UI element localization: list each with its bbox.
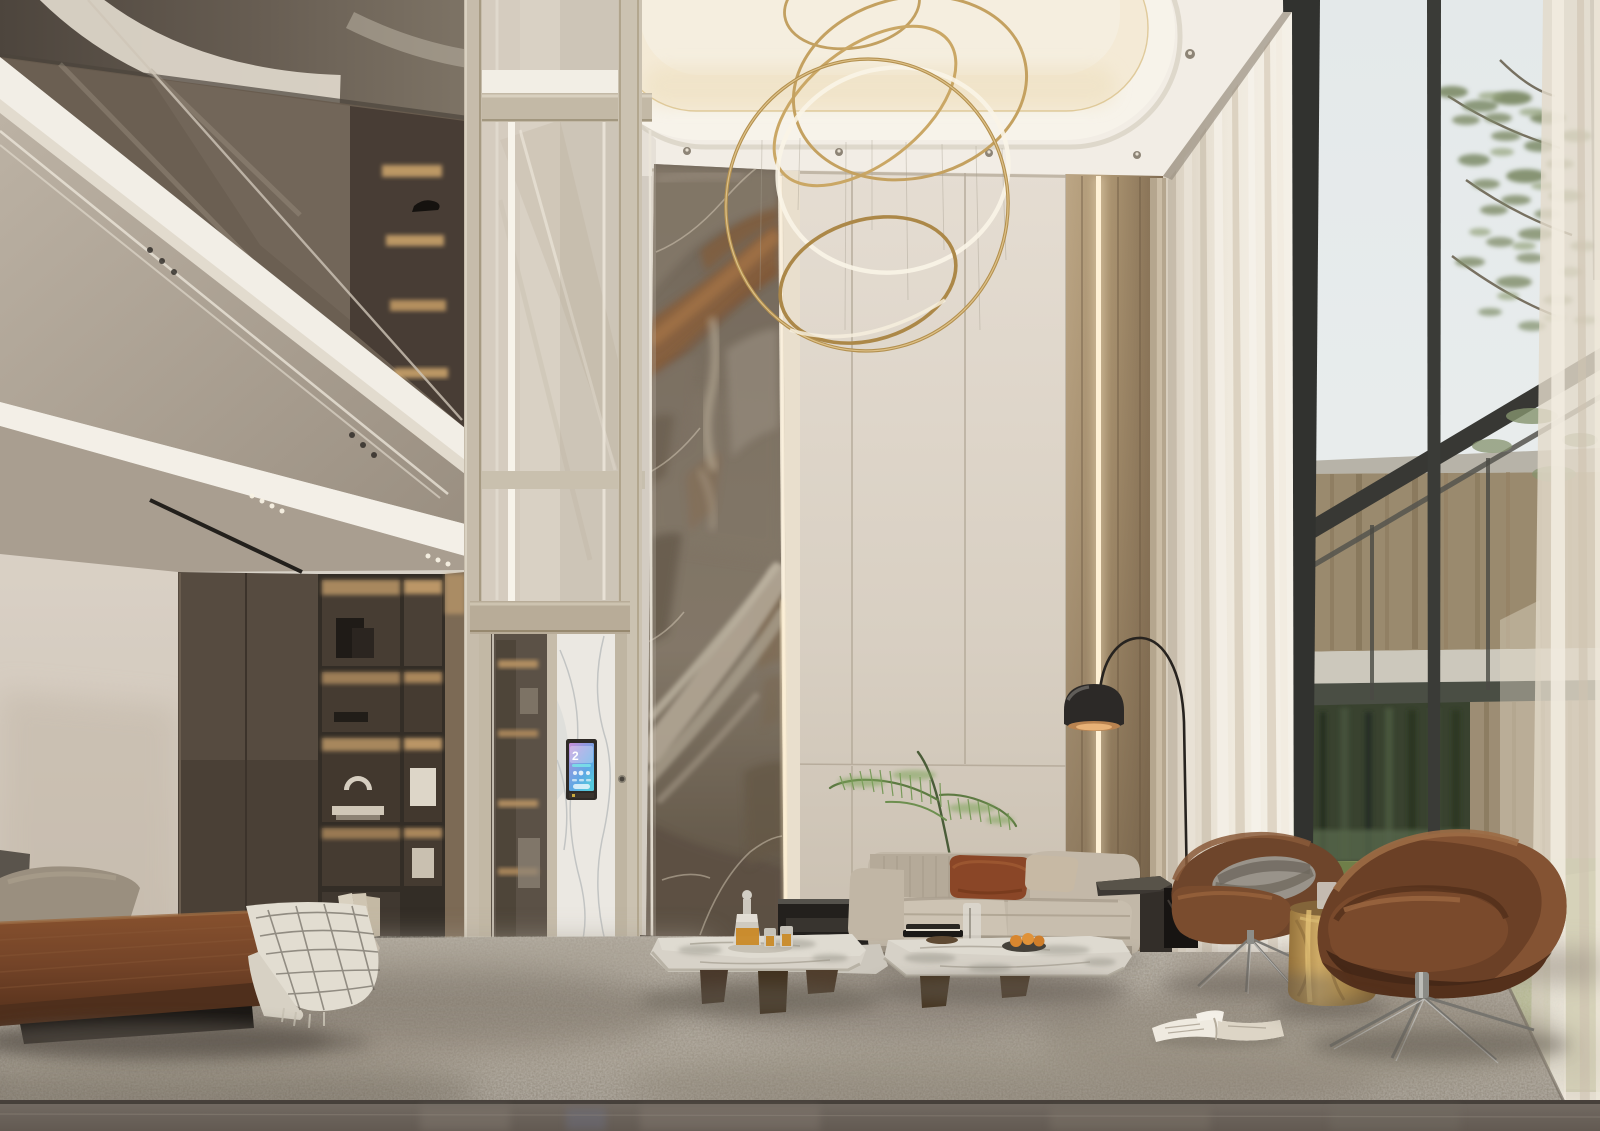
svg-text:2: 2 (572, 749, 579, 763)
